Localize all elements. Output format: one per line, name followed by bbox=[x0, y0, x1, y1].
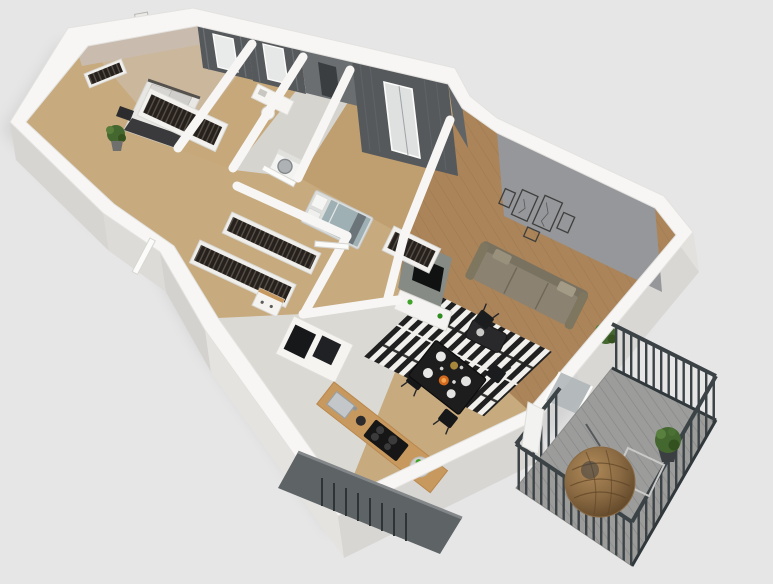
floor-plan-render bbox=[0, 0, 773, 584]
apartment-isometric-svg bbox=[0, 0, 773, 584]
